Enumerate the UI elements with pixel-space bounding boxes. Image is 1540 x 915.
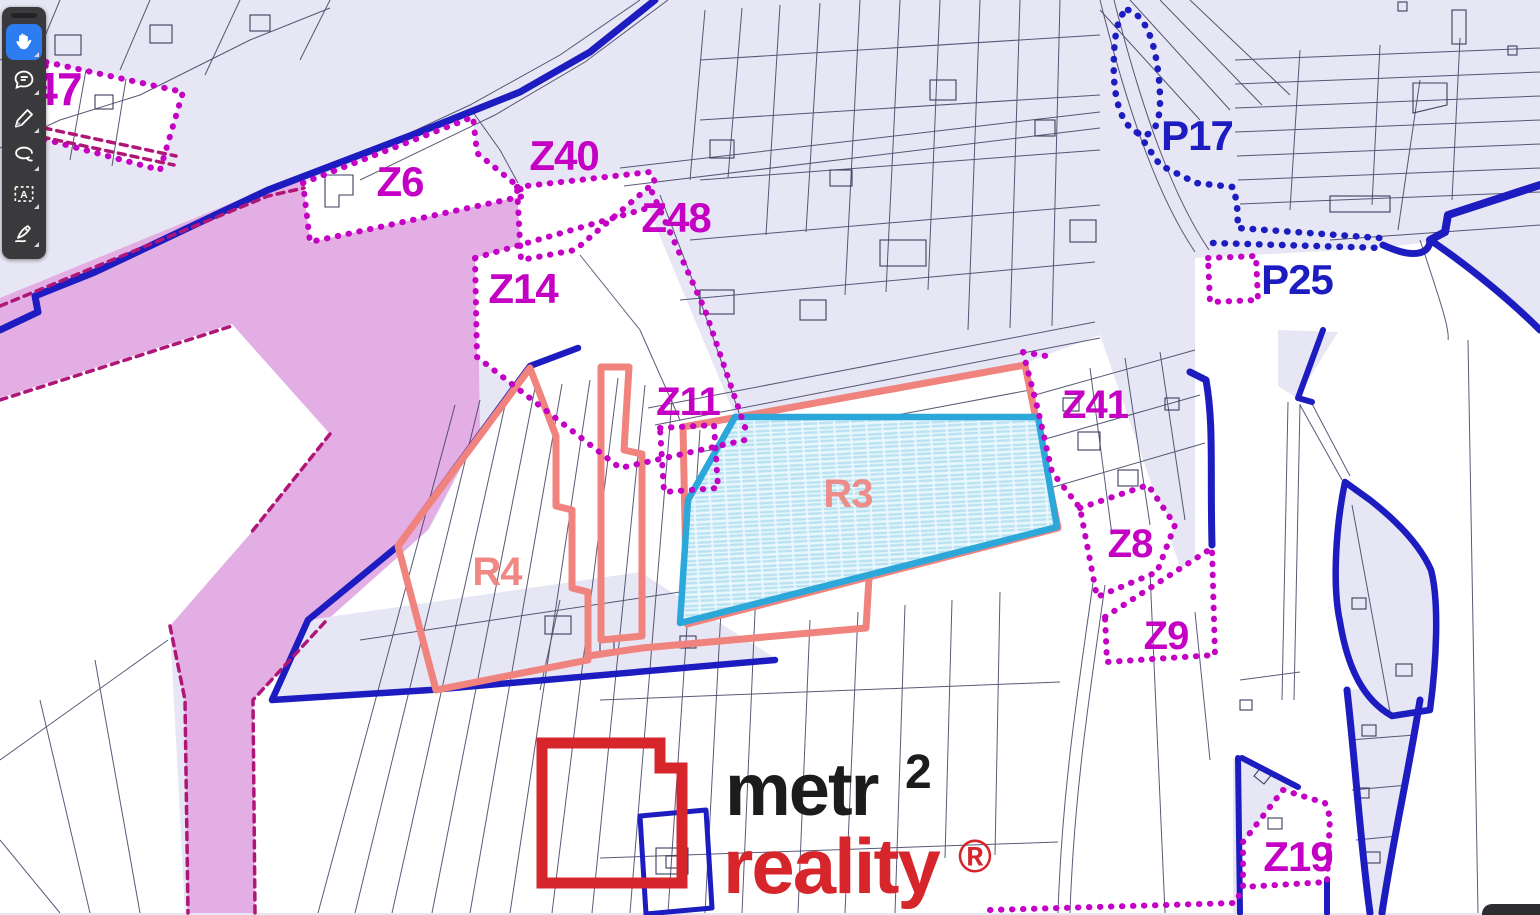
zone-label-Z8: Z8 <box>1108 522 1153 566</box>
zone-label-R3: R3 <box>823 472 872 516</box>
zone-label-Z14: Z14 <box>488 265 559 312</box>
zone-label-P17: P17 <box>1161 112 1233 159</box>
annotation-toolbar: A <box>2 7 46 259</box>
tool-caret-icon <box>34 128 39 133</box>
map-viewer: 47 Z6 Z40 Z48 Z14 Z11 Z41 P17 P25 Z8 Z9 … <box>0 0 1540 915</box>
tool-caret-icon <box>34 52 39 57</box>
map-canvas[interactable]: 47 Z6 Z40 Z48 Z14 Z11 Z41 P17 P25 Z8 Z9 … <box>0 0 1540 915</box>
draw-tool-button[interactable] <box>6 100 42 136</box>
zone-label-Z40: Z40 <box>529 132 598 179</box>
zone-label-Z41: Z41 <box>1062 383 1129 427</box>
zone-label-Z19: Z19 <box>1263 833 1332 880</box>
tool-caret-icon <box>34 204 39 209</box>
tool-caret-icon <box>34 90 39 95</box>
zone-label-P25: P25 <box>1261 256 1333 303</box>
zone-label-Z11: Z11 <box>656 380 720 424</box>
note-tool-button[interactable] <box>6 62 42 98</box>
toolbar-drag-handle[interactable] <box>11 13 37 18</box>
text-select-tool-button[interactable]: A <box>6 176 42 212</box>
tool-caret-icon <box>34 242 39 247</box>
tool-caret-icon <box>34 166 39 171</box>
zone-label-Z6: Z6 <box>376 158 423 205</box>
svg-text:A: A <box>20 190 28 201</box>
hand-tool-button[interactable] <box>6 24 42 60</box>
sign-tool-button[interactable] <box>6 214 42 250</box>
corner-panel-edge[interactable] <box>1482 904 1540 915</box>
zone-label-R4: R4 <box>472 550 523 594</box>
zone-label-Z48: Z48 <box>641 194 711 241</box>
lasso-tool-button[interactable] <box>6 138 42 174</box>
zone-label-Z9: Z9 <box>1144 614 1189 658</box>
